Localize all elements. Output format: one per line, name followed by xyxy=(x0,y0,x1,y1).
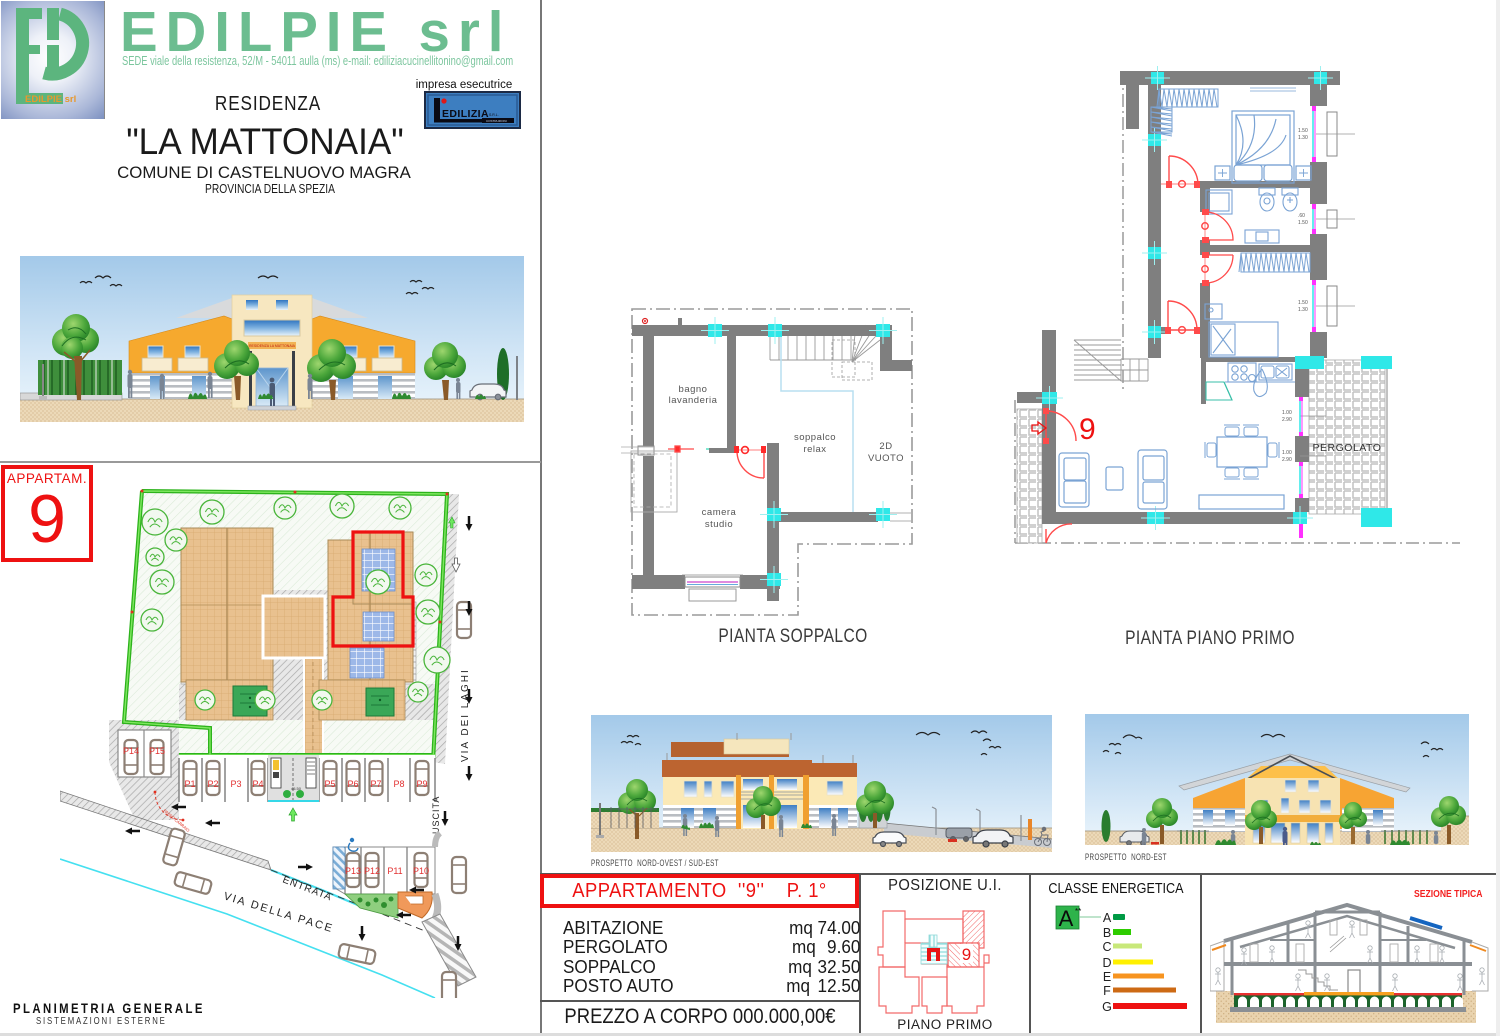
svg-text:P4: P4 xyxy=(252,779,263,789)
svg-text:soppalco: soppalco xyxy=(794,432,836,443)
svg-text:P2: P2 xyxy=(207,779,218,789)
svg-text:P8: P8 xyxy=(393,779,404,789)
svg-text:F: F xyxy=(1103,984,1111,998)
svg-text:A: A xyxy=(1059,906,1074,931)
svg-text:COSTRUZIONI: COSTRUZIONI xyxy=(486,119,507,123)
svg-text:**: ** xyxy=(1075,907,1081,916)
svg-text:P1: P1 xyxy=(184,779,195,789)
svg-text:P10: P10 xyxy=(413,866,429,876)
svg-text:USCITA: USCITA xyxy=(431,796,441,834)
svg-text:D: D xyxy=(1102,956,1111,970)
svg-text:VIA DEI LAGHI: VIA DEI LAGHI xyxy=(460,668,471,762)
svg-text:A: A xyxy=(1103,911,1112,925)
svg-text:EDILIZIA: EDILIZIA xyxy=(442,108,489,120)
svg-text:E: E xyxy=(1103,970,1111,984)
svg-text:1.30: 1.30 xyxy=(1298,135,1308,141)
svg-text:P11: P11 xyxy=(387,866,402,876)
svg-text:45.50: 45.50 xyxy=(291,786,302,791)
svg-text:9: 9 xyxy=(1079,413,1096,446)
svg-text:.60: .60 xyxy=(1298,213,1305,219)
svg-text:C: C xyxy=(1102,940,1111,954)
svg-text:1.50: 1.50 xyxy=(1298,128,1308,134)
svg-text:1.00: 1.00 xyxy=(1282,450,1292,456)
svg-text:lavanderia: lavanderia xyxy=(669,395,718,406)
svg-text:VUOTO: VUOTO xyxy=(868,453,904,464)
svg-text:9: 9 xyxy=(962,945,971,964)
svg-text:1.50: 1.50 xyxy=(1298,300,1308,306)
svg-text:relax: relax xyxy=(803,444,826,455)
svg-text:PERGOLATO: PERGOLATO xyxy=(1313,442,1382,454)
svg-text:1.50: 1.50 xyxy=(1298,220,1308,226)
svg-text:S.R.L.: S.R.L. xyxy=(489,113,499,117)
svg-text:studio: studio xyxy=(705,519,733,530)
svg-text:camera: camera xyxy=(702,507,737,518)
svg-text:bagno: bagno xyxy=(679,384,708,395)
svg-text:P15: P15 xyxy=(149,746,165,756)
svg-text:P3: P3 xyxy=(230,779,241,789)
svg-text:RESIDENZA LA MATTONAIA: RESIDENZA LA MATTONAIA xyxy=(249,344,296,348)
svg-text:ENTRATA: ENTRATA xyxy=(281,875,334,904)
svg-text:2.90: 2.90 xyxy=(1282,457,1292,463)
svg-text:1.30: 1.30 xyxy=(1298,307,1308,313)
svg-text:P9: P9 xyxy=(416,779,427,789)
svg-text:EDILPIE srl: EDILPIE srl xyxy=(25,94,76,105)
svg-text:P14: P14 xyxy=(123,746,139,756)
svg-text:P6: P6 xyxy=(347,779,358,789)
svg-text:G: G xyxy=(1102,1000,1112,1014)
svg-text:P7: P7 xyxy=(370,779,381,789)
svg-text:2.90: 2.90 xyxy=(1282,417,1292,423)
svg-text:2D: 2D xyxy=(879,441,892,452)
svg-text:P12: P12 xyxy=(364,866,380,876)
svg-text:P13: P13 xyxy=(345,866,361,876)
svg-text:P5: P5 xyxy=(324,779,335,789)
svg-text:B: B xyxy=(1103,926,1111,940)
svg-text:1.00: 1.00 xyxy=(1282,410,1292,416)
